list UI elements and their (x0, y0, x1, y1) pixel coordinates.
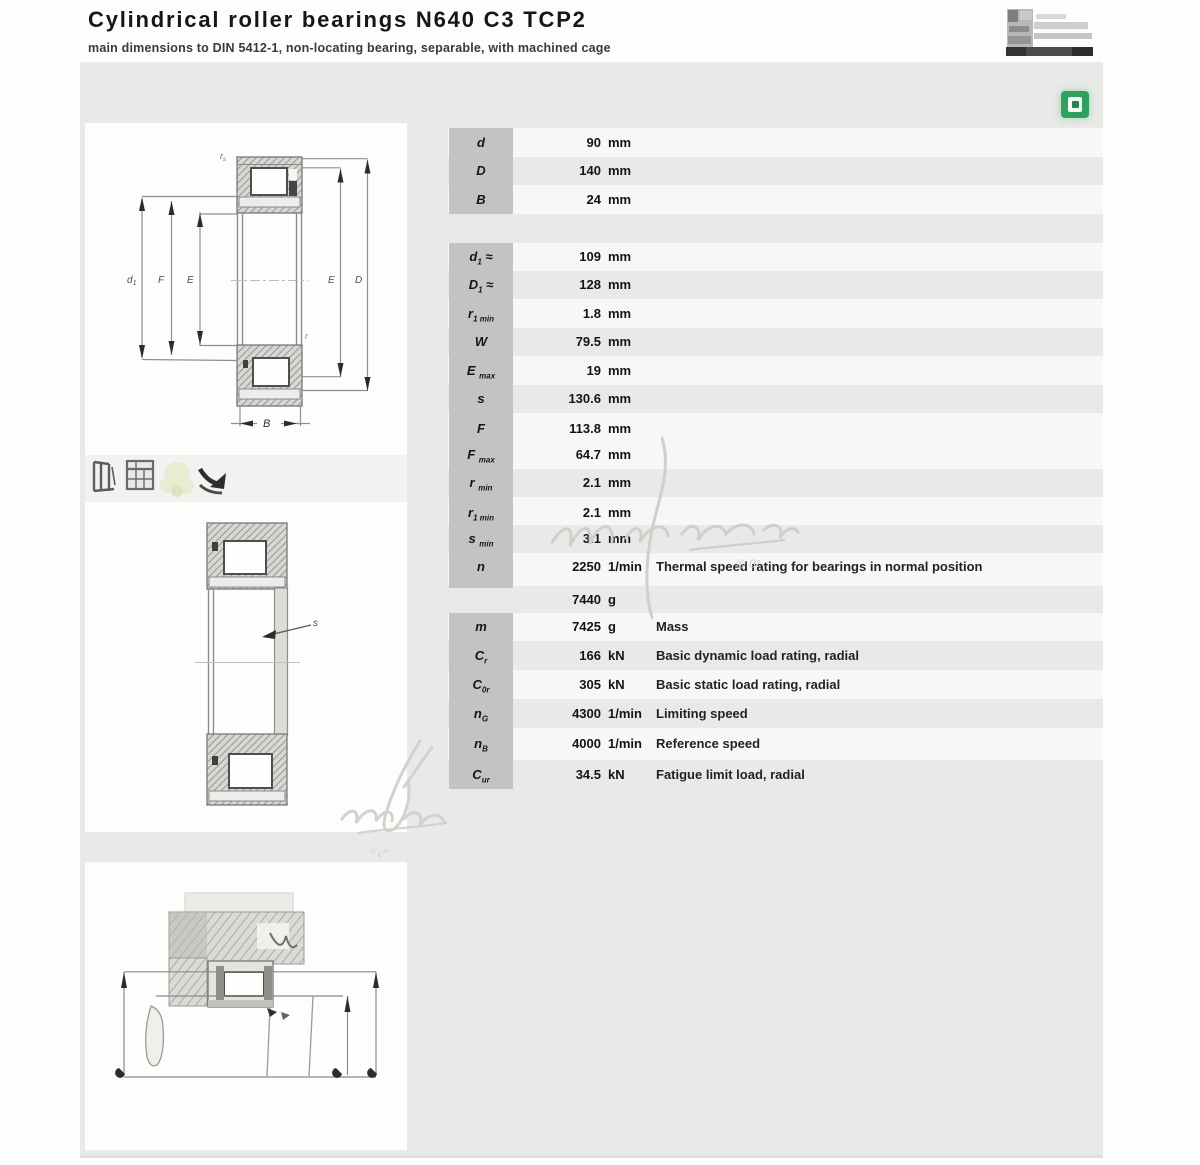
svg-text:rs: rs (220, 151, 226, 163)
svg-text:E: E (328, 275, 335, 286)
svg-text:B: B (263, 418, 270, 430)
svg-text:® 0°: ® 0° (736, 556, 761, 571)
svg-text:E: E (187, 275, 194, 286)
svg-text:F: F (158, 275, 165, 286)
svg-text:d1: d1 (127, 275, 137, 287)
svg-text:D: D (355, 275, 362, 286)
svg-text:r: r (305, 331, 309, 341)
svg-text:° c°: ° c° (370, 846, 388, 860)
svg-text:s: s (313, 618, 318, 629)
